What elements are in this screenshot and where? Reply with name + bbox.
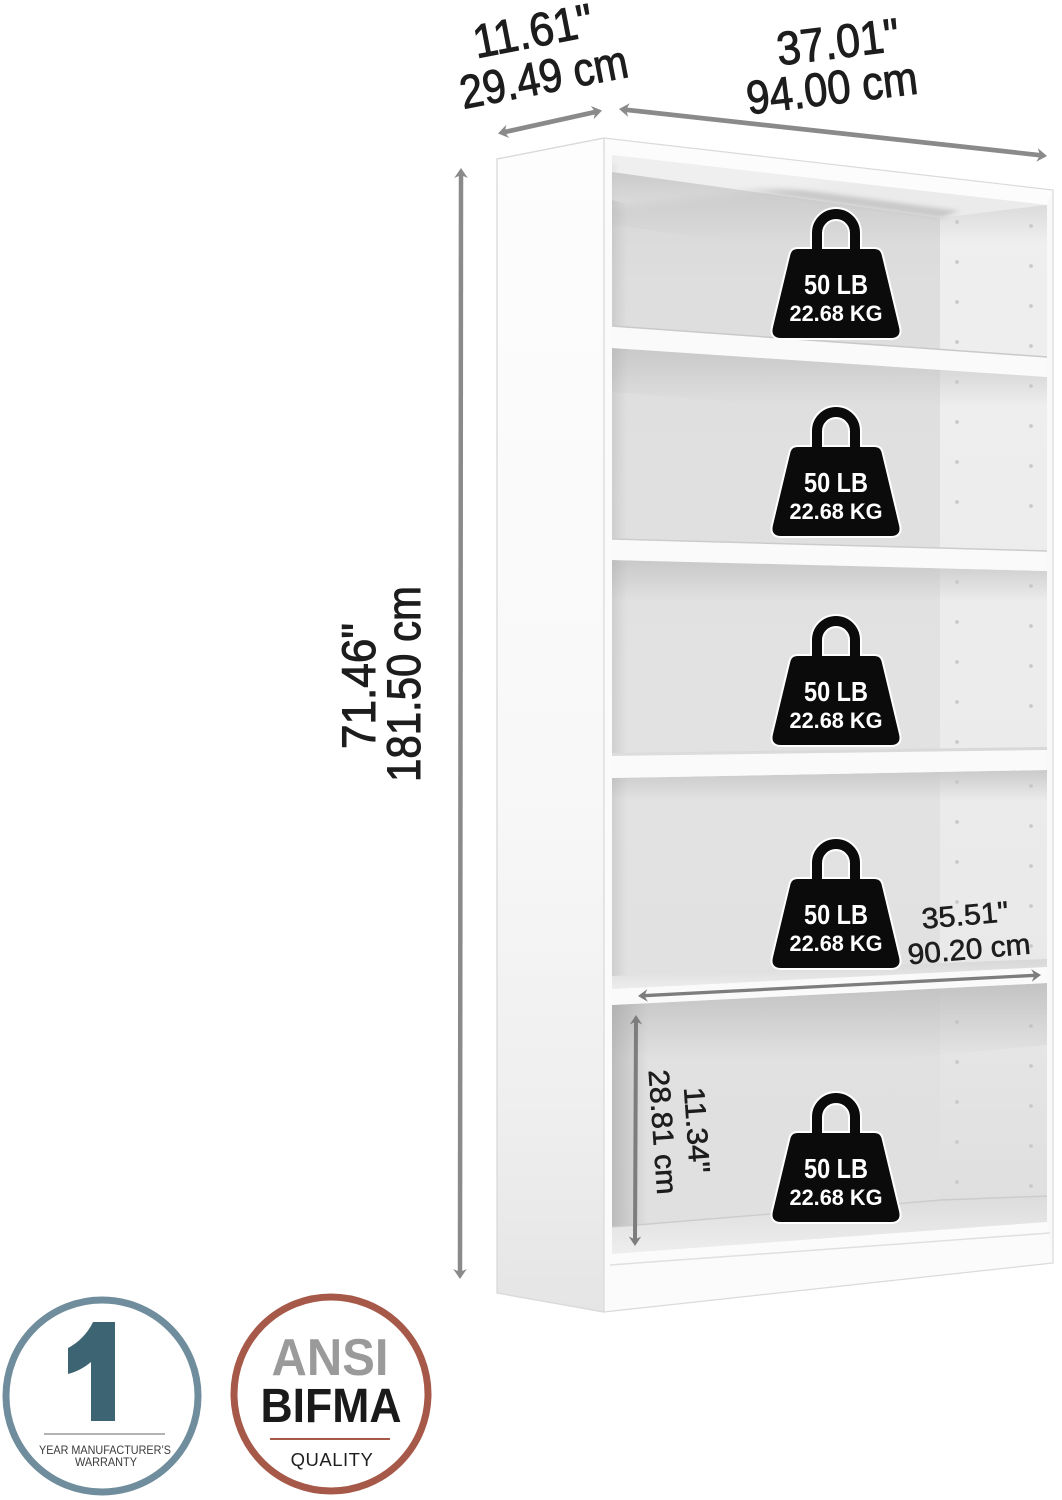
svg-text:BIFMA: BIFMA: [261, 1380, 402, 1433]
svg-text:QUALITY: QUALITY: [291, 1449, 374, 1470]
svg-text:181.50 cm: 181.50 cm: [377, 586, 430, 782]
svg-text:ANSI: ANSI: [272, 1329, 389, 1387]
svg-text:WARRANTY: WARRANTY: [75, 1457, 137, 1469]
svg-text:11.34": 11.34": [677, 1086, 715, 1174]
svg-text:YEAR MANUFACTURER’S: YEAR MANUFACTURER’S: [39, 1445, 171, 1457]
